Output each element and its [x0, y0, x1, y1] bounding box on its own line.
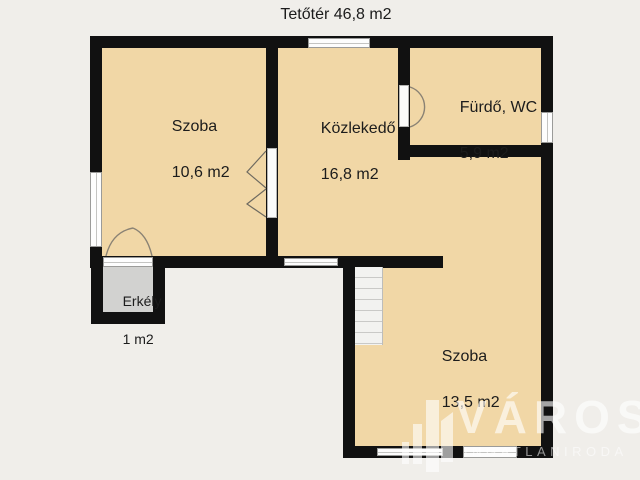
wall-lower-left: [343, 256, 355, 458]
window-left-wall: [90, 172, 102, 247]
watermark-tagline: INGATLANIRODA: [464, 444, 628, 459]
room-label-erkely: Erkély 1 m2: [107, 273, 161, 368]
plan-title: Tetőtér 46,8 m2: [200, 6, 472, 24]
room-area: 5,9 m2: [460, 145, 509, 162]
window-kozlekedo-bottom: [284, 258, 338, 266]
door-furdo-opening: [399, 85, 409, 127]
watermark-brand: VÁROSI: [456, 390, 640, 444]
room-area: 10,6 m2: [172, 164, 230, 181]
door-szoba-kozlekedo-opening: [267, 148, 277, 218]
room-label-szoba1: Szoba 10,6 m2: [154, 92, 230, 207]
room-name: Szoba: [172, 118, 217, 135]
room-area: 1 m2: [123, 331, 154, 347]
room-label-kozlekedo: Közlekedő 16,8 m2: [303, 94, 396, 209]
room-label-furdo: Fürdő, WC 5,9 m2: [442, 73, 537, 188]
varosi-logo-icon: [400, 398, 456, 474]
window-top-wall: [308, 38, 370, 48]
room-name: Erkély: [123, 293, 162, 309]
stairs: [355, 267, 383, 345]
door-balcony-threshold: [103, 257, 153, 267]
room-name: Közlekedő: [321, 120, 396, 137]
floor-plan: Tetőtér 46,8 m2 Szoba 10,6 m2: [0, 0, 640, 480]
room-name: Szoba: [442, 348, 487, 365]
window-furdo-right: [541, 112, 553, 143]
room-area: 16,8 m2: [321, 166, 379, 183]
room-name: Fürdő, WC: [460, 99, 537, 116]
